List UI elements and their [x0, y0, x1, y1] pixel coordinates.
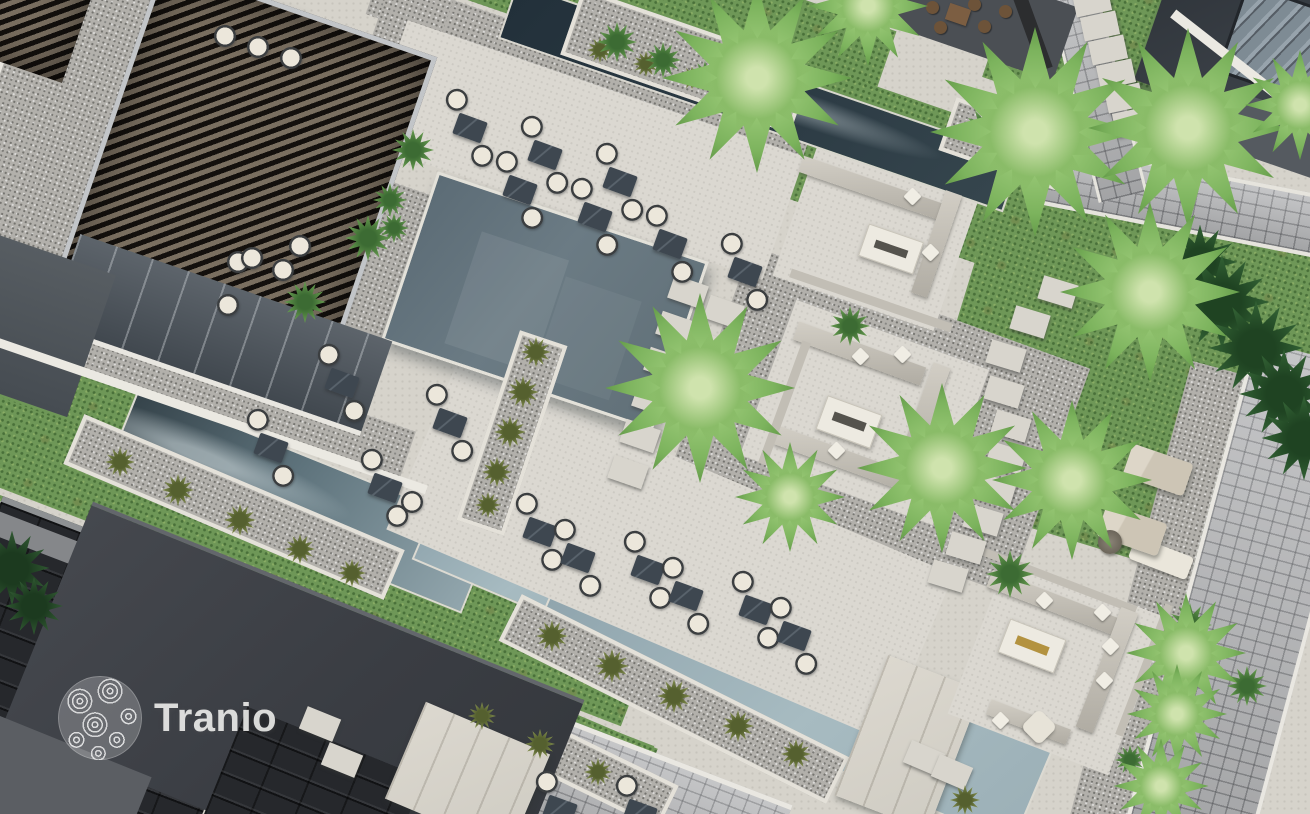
outdoor-chair	[358, 446, 386, 474]
outdoor-chair	[684, 610, 712, 638]
tranio-logo-icon	[58, 676, 142, 760]
outdoor-chair	[448, 437, 476, 465]
outdoor-chair	[493, 148, 521, 176]
outdoor-chair	[533, 768, 561, 796]
outdoor-chair	[340, 397, 368, 425]
wood-chair	[999, 5, 1012, 18]
outdoor-chair	[643, 202, 671, 230]
outdoor-chair	[269, 462, 297, 490]
outdoor-chair	[518, 113, 546, 141]
outdoor-chair	[659, 554, 687, 582]
outdoor-chair	[668, 258, 696, 286]
dining-table	[432, 408, 468, 439]
dining-table	[776, 621, 812, 652]
wood-chair	[926, 1, 939, 14]
dining-table	[502, 175, 538, 206]
dining-table	[560, 543, 596, 574]
courtyard-render: Tranio	[0, 0, 1310, 814]
outdoor-chair	[518, 204, 546, 232]
outdoor-chair	[315, 341, 343, 369]
dining-table	[367, 473, 403, 504]
dining-table	[452, 113, 488, 144]
dining-table	[727, 257, 763, 288]
dining-table	[253, 433, 289, 464]
outdoor-chair	[621, 528, 649, 556]
outdoor-chair	[576, 572, 604, 600]
outdoor-chair	[593, 140, 621, 168]
dining-table	[622, 799, 658, 814]
outdoor-chair	[244, 406, 272, 434]
outdoor-chair	[613, 772, 641, 800]
tranio-logo-text: Tranio	[154, 696, 277, 741]
dining-table	[324, 368, 360, 399]
outdoor-chair	[423, 381, 451, 409]
outdoor-chair	[551, 516, 579, 544]
dining-table	[668, 581, 704, 612]
outdoor-chair	[443, 86, 471, 114]
outdoor-chair	[718, 230, 746, 258]
wood-chair	[934, 21, 947, 34]
dining-table	[542, 795, 578, 814]
wood-chair	[978, 20, 991, 33]
outdoor-chair	[568, 175, 596, 203]
outdoor-chair	[767, 594, 795, 622]
outdoor-chair	[792, 650, 820, 678]
outdoor-chair	[513, 490, 541, 518]
dining-table	[652, 229, 688, 260]
tranio-watermark: Tranio	[56, 672, 386, 802]
outdoor-chair	[743, 286, 771, 314]
outdoor-chair	[729, 568, 757, 596]
outdoor-chair	[593, 231, 621, 259]
dining-table	[577, 202, 613, 233]
